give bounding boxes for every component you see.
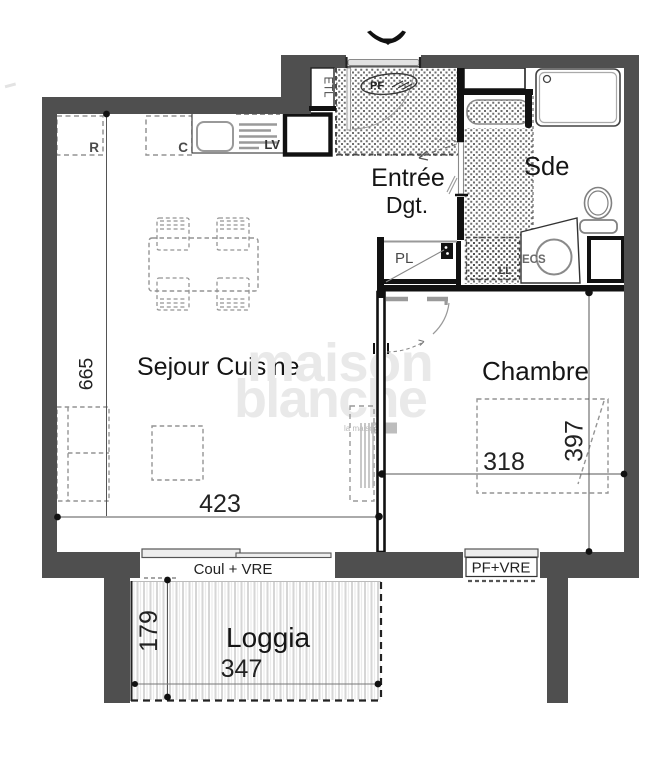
svg-text:LL: LL bbox=[499, 265, 513, 277]
svg-text:397: 397 bbox=[561, 420, 589, 462]
svg-text:423: 423 bbox=[199, 490, 241, 518]
svg-text:Coul + VRE: Coul + VRE bbox=[194, 561, 273, 578]
svg-text:Entrée: Entrée bbox=[371, 164, 445, 192]
svg-text:665: 665 bbox=[76, 358, 98, 391]
svg-text:C: C bbox=[178, 140, 188, 155]
svg-text:Loggia: Loggia bbox=[226, 622, 311, 653]
svg-text:318: 318 bbox=[483, 448, 525, 476]
svg-text:blanche: blanche bbox=[234, 369, 427, 429]
svg-text:R: R bbox=[89, 140, 99, 155]
svg-text:Chambre: Chambre bbox=[482, 356, 589, 386]
svg-text:PF+VRE: PF+VRE bbox=[472, 560, 531, 577]
svg-text:Sde: Sde bbox=[524, 153, 569, 181]
svg-text:PF: PF bbox=[370, 80, 384, 92]
svg-text:Dgt.: Dgt. bbox=[386, 192, 428, 218]
svg-text:PL: PL bbox=[395, 250, 413, 267]
svg-text:ECS: ECS bbox=[522, 254, 546, 266]
svg-text:LV: LV bbox=[264, 137, 280, 152]
svg-text:179: 179 bbox=[135, 610, 163, 652]
svg-text:ETL: ETL bbox=[322, 76, 334, 98]
svg-text:347: 347 bbox=[221, 655, 263, 683]
